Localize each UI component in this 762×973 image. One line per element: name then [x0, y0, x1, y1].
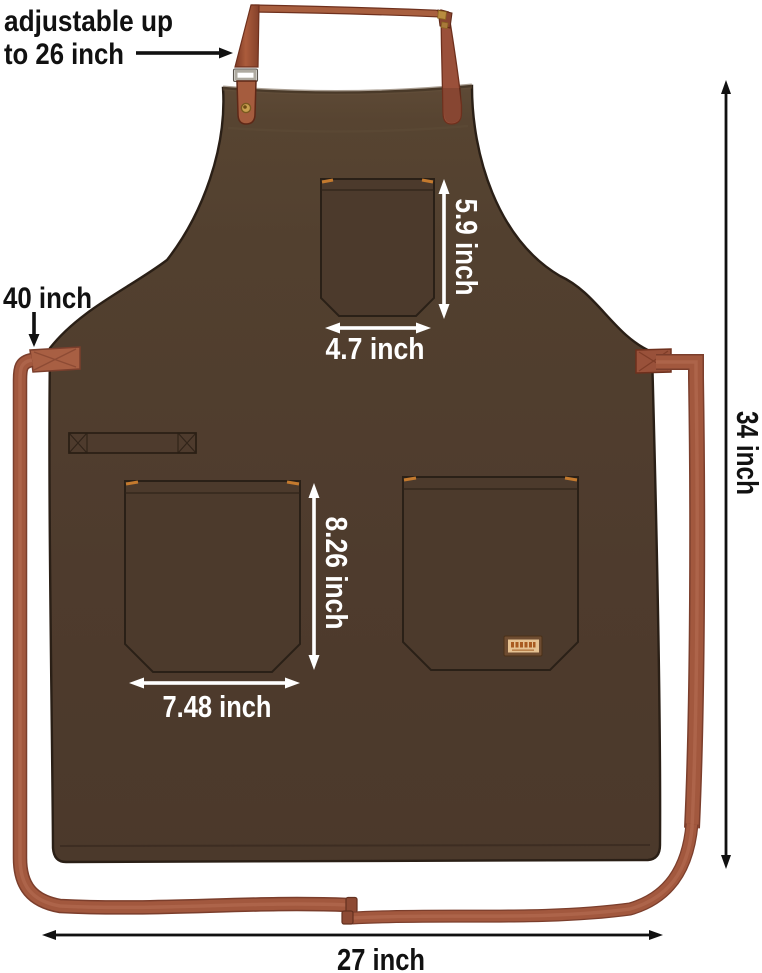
svg-text:34 inch: 34 inch: [730, 411, 762, 495]
svg-text:5.9 inch: 5.9 inch: [449, 199, 484, 296]
svg-text:adjustable up: adjustable up: [4, 5, 173, 38]
svg-text:7.48 inch: 7.48 inch: [163, 689, 272, 724]
svg-text:40 inch: 40 inch: [3, 282, 92, 315]
svg-text:8.26 inch: 8.26 inch: [319, 517, 354, 630]
svg-text:to 26 inch: to 26 inch: [4, 38, 124, 71]
svg-text:4.7 inch: 4.7 inch: [326, 331, 425, 366]
svg-text:27 inch: 27 inch: [337, 942, 425, 973]
